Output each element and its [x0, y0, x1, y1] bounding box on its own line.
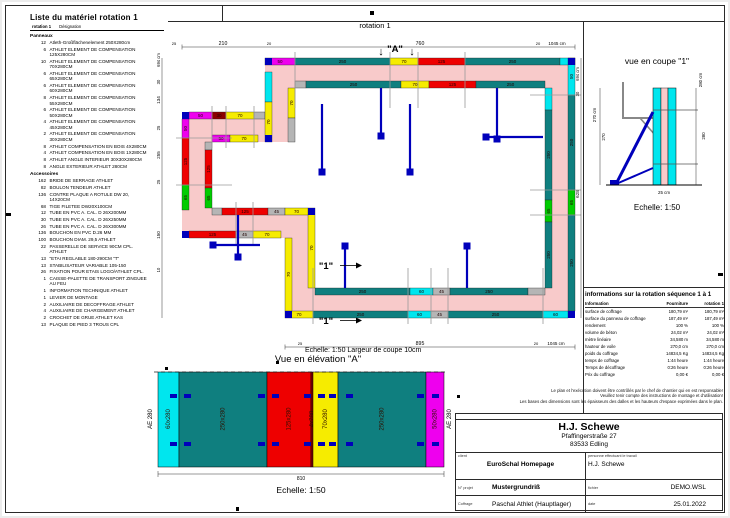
formwork-panel	[295, 81, 306, 88]
plan-view-drawing: 5025070125250250701252505025065250250652…	[150, 14, 590, 360]
info-value: 24,02 m³	[688, 329, 724, 336]
panel-size-label: 250	[546, 251, 551, 259]
dimension-label: 280	[701, 132, 706, 140]
drawing-sheet: { "frame": {"rotation_label": "rotation …	[0, 0, 730, 518]
panel-size-label: 45	[242, 232, 248, 237]
coffrage-cell: Coffrage Paschal Athlet (Hauptlager)	[456, 496, 586, 512]
disclaimer-text: Le plan et l'exécution doivent être cont…	[420, 388, 723, 404]
file-value: DEMO.WSL	[671, 484, 706, 491]
panel-size-label: 45	[437, 312, 443, 317]
item-qty: 8	[30, 157, 50, 162]
material-list-item: 8ATHLET ANGLE INTERIEUR 30X30X280CM	[30, 157, 164, 162]
prop-foot	[610, 180, 619, 185]
item-qty: 13	[30, 263, 50, 268]
tie-point	[304, 442, 311, 446]
dimension-label: 255	[156, 151, 161, 159]
material-list-item: 13PLAQUE DE PIED 3 TROUS CPL	[30, 322, 164, 327]
material-list-item: 4AUXILIAIRE DE CHARGEMENT ATHLET	[30, 308, 164, 313]
panel-size-label: 70x280	[323, 408, 329, 428]
material-list-item: 30TUBE EN PVC A. CAL. D 26X250MM	[30, 217, 164, 222]
item-name: AUXILIAIRE DE DECOFFRAGE ATHLET	[50, 302, 148, 307]
panel-size-label: 60	[553, 312, 559, 317]
dimension-label: 628	[575, 190, 580, 198]
formwork-panel	[653, 88, 661, 185]
info-value: 24,02 m³	[650, 329, 688, 336]
info-label: surface de coffrage	[585, 308, 650, 315]
panel-size-label: 70	[289, 100, 294, 106]
company-name: H.J. Schewe	[456, 421, 722, 433]
panel-size-label: 70	[296, 312, 302, 317]
material-list-item: 22PASSERELLE DE SERVICE 90CM CPL. ATHLET	[30, 244, 164, 255]
item-qty: 4	[30, 308, 50, 313]
panel-size-label: 125	[241, 209, 249, 214]
dimension-label: 30	[575, 91, 580, 96]
section-marker-1: "1"	[319, 261, 333, 272]
panel-size-label: 250	[569, 138, 574, 146]
panel-size-label: 30	[216, 113, 222, 118]
corner-element	[568, 58, 575, 65]
material-list-item: 12Atleth-Großflächenelement 250X280cm	[30, 40, 164, 45]
info-col-fourniture: Fourniture	[650, 301, 688, 306]
info-value: 34,580 m	[688, 336, 724, 343]
item-qty: 100	[30, 237, 50, 242]
bracket	[623, 82, 653, 118]
panel-size-label: 70	[294, 209, 300, 214]
panel-size-label: 50	[277, 59, 283, 64]
ae-label: AE 280	[148, 408, 154, 428]
item-name: ATHLET ELEMENT DE COMPENSATION 125X280CM	[50, 47, 148, 58]
info-col-rotation: rotation 1	[688, 301, 724, 306]
formwork-panel	[545, 88, 552, 110]
item-qty: 2	[30, 131, 50, 142]
item-qty: 26	[30, 269, 50, 274]
formwork-panel	[528, 288, 545, 295]
material-list-item: 1CAISSE-PALETTE DE TRANSPORT ZINGUEE AU …	[30, 276, 164, 287]
file-label: fichier	[588, 486, 622, 490]
panel-size-label: 125	[206, 165, 211, 173]
info-value: 1:44 heure	[650, 357, 688, 364]
item-qty: 1	[30, 288, 50, 293]
panel-size-label: 70	[237, 113, 243, 118]
company-city: 83533 Edling	[456, 441, 722, 449]
panel-size-label: 65	[569, 200, 574, 206]
tie-point	[417, 442, 424, 446]
panel-size-label: 250x280	[380, 407, 386, 431]
formwork-panel	[265, 72, 272, 102]
item-qty: 6	[30, 83, 50, 94]
dimension-label: 280 cm	[698, 72, 703, 87]
dimension-label: 25	[298, 341, 303, 346]
info-value: 0:26 heure	[650, 364, 688, 371]
prop-foot	[378, 133, 385, 140]
frame-mark-icon	[236, 507, 239, 511]
info-label: Prix du coffrage	[585, 371, 650, 378]
section-arrow-icon: ↓	[378, 46, 384, 58]
dimension-label: 210	[219, 41, 228, 47]
info-label: rendement	[585, 322, 650, 329]
dimension-label: 30	[156, 79, 161, 84]
item-qty: 10	[30, 59, 50, 70]
info-label: mètre linéaire	[585, 336, 650, 343]
panel-size-label: 45	[274, 209, 280, 214]
info-label: hauteur de voile	[585, 343, 650, 350]
material-list-item: 8ATHLET ELEMENT DE COMPENSATION 55X280CM	[30, 95, 164, 106]
info-title: informations sur la rotation séquence 1 …	[585, 291, 724, 298]
item-name: ATHLET ELEMENT DE COMPENSATION 30X280CM	[50, 131, 148, 142]
section-arrow-icon	[356, 263, 362, 269]
item-name: ATHLET ANGLE INTERIEUR 30X30X280CM	[50, 157, 148, 162]
panel-size-label: 250	[339, 59, 347, 64]
item-qty: 6	[30, 107, 50, 118]
worker-label: personne effectuant le travail	[588, 454, 720, 458]
tie-point	[258, 442, 265, 446]
item-name: "ETAI REGLABLE 180-290CM "T"	[50, 256, 148, 261]
dimension-label: 20	[536, 41, 541, 46]
material-list-header-designation: Désignation	[59, 24, 81, 29]
material-list-item: 136CONTRE PLAQUE A ROTULE DW 20, 14X20CM	[30, 192, 164, 203]
coffrage-label: Coffrage	[458, 502, 492, 506]
info-row: surface de coffrage180,79 m²180,79 m²	[585, 308, 724, 315]
project-cell: N° projet Mustergrundriß	[456, 480, 586, 495]
panel-size-label: 70	[241, 136, 247, 141]
panel-size-label: 250	[359, 289, 367, 294]
section-marker-1: "1"	[319, 316, 333, 327]
item-qty: 136	[30, 230, 50, 235]
corner-element	[265, 58, 272, 65]
item-name: BOULON TENDEUR ATHLET	[50, 185, 148, 190]
info-value: 14834,5 Kg	[650, 350, 688, 357]
dimension-label: 25	[156, 179, 161, 184]
material-list-item: 2AUXILIAIRE DE DECOFFRAGE ATHLET	[30, 302, 164, 307]
item-name: PLAQUE DE PIED 3 TROUS CPL	[50, 322, 148, 327]
disclaimer-line: Les bases des dimensions sont les épaiss…	[420, 399, 723, 404]
item-name: ATHLET ELEMENT DE COMPENSATION 65X280CM	[50, 71, 148, 82]
corner-element	[308, 208, 315, 215]
section-view-drawing: vue en coupe "1"270 cm270280 cm28025 cmE…	[590, 40, 724, 230]
item-qty: 6	[30, 71, 50, 82]
info-row: rendement100 %100 %	[585, 322, 724, 329]
tie-point	[346, 442, 353, 446]
material-list-item: 2CROCHET DE GRUE ATHLET KAS	[30, 315, 164, 320]
dimension-label: 25	[156, 125, 161, 130]
item-name: AUXILIAIRE DE CHARGEMENT ATHLET	[50, 308, 148, 313]
worker-cell: personne effectuant le travail H.J. Sche…	[586, 453, 722, 479]
ae-label: AE 280	[447, 408, 453, 428]
panel-size-label: 250x280	[221, 407, 227, 431]
info-row: poids du coffrage14834,5 Kg14834,5 Kg	[585, 350, 724, 357]
panel-size-label: 70	[412, 82, 418, 87]
info-label: volume de béton	[585, 329, 650, 336]
section-view-title: vue en coupe "1"	[625, 56, 689, 66]
dimension-label: 760	[416, 41, 425, 47]
panel-size-label: 125x280	[287, 407, 293, 431]
prop-foot	[342, 243, 349, 250]
dimension-label: 270 cm	[592, 107, 597, 122]
item-name: LEVIER DE MONTAGE	[50, 295, 148, 300]
dimension-label: 694 cm	[575, 67, 580, 81]
material-list-item: 1LEVIER DE MONTAGE	[30, 295, 164, 300]
item-name: ATHLET ELEMENT DE COMPENSATION 70X280CM	[50, 59, 148, 70]
info-value: 180,79 m²	[650, 308, 688, 315]
material-list-item: 8ANGLE EXTERIEUR ATHLET 280CM	[30, 164, 164, 169]
info-label: poids du coffrage	[585, 350, 650, 357]
company-street: Pfaffingerstraße 27	[456, 433, 722, 441]
material-list-header: rotation 1 Désignation	[30, 23, 164, 32]
info-divider	[583, 287, 724, 288]
item-name: ATHLET ELEMENT DE COMPENSATION 60X280CM	[50, 83, 148, 94]
tie-point	[329, 442, 336, 446]
material-list-item: 12TUBE EN PVC A. CAL. D 26X200MM	[30, 210, 164, 215]
item-qty: 82	[30, 185, 50, 190]
material-list-item: 68TIGE FILETEE DW20X100CM	[30, 204, 164, 209]
material-list-item: 162BRIDE DE SERRAGE ATHLET	[30, 178, 164, 183]
info-row: Temps de décoffrage0:26 heure0:26 heure	[585, 364, 724, 371]
title-block: H.J. Schewe Pfaffingerstraße 27 83533 Ed…	[455, 413, 723, 511]
item-name: TUBE EN PVC A. CAL. D 26X250MM	[50, 217, 148, 222]
item-name: BOUCHON EN PVC D.26 MM	[50, 230, 148, 235]
corner-element	[285, 311, 292, 318]
item-qty: 136	[30, 192, 50, 203]
material-section-header: Panneaux	[30, 34, 164, 39]
tie-point	[304, 394, 311, 398]
panel-size-label: 250	[485, 289, 493, 294]
material-list-item: 26TUBE EN PVC A. CAL. D 26X300MM	[30, 224, 164, 229]
corner-element	[182, 112, 189, 119]
panel-size-label: 60	[417, 312, 423, 317]
item-qty: 2	[30, 302, 50, 307]
item-name: CONTRE PLAQUE A ROTULE DW 20, 14X20CM	[50, 192, 148, 203]
panel-size-label: 70	[401, 59, 407, 64]
panel-size-label: 70	[286, 272, 291, 278]
tie-point	[318, 394, 325, 398]
material-list-item: 1INFORMATION TECHNIQUE ATHLET	[30, 288, 164, 293]
info-row: temps de coffrage1:44 heure1:44 heure	[585, 357, 724, 364]
material-list-item: 4ATHLET ELEMENT DE COMPENSATION 45X280CM	[30, 119, 164, 130]
item-qty: 68	[30, 204, 50, 209]
item-qty: 1	[30, 295, 50, 300]
frame-mark-icon	[718, 273, 723, 276]
section-arrow-icon	[356, 318, 362, 324]
panel-size-label: 50	[183, 126, 188, 132]
item-name: CAISSE-PALETTE DE TRANSPORT ZINGUEE AU F…	[50, 276, 148, 287]
tie-point	[272, 442, 279, 446]
push-pull-prop	[616, 112, 653, 184]
tie-point	[184, 394, 191, 398]
panel-size-label: 50	[569, 74, 574, 80]
project-label: N° projet	[458, 486, 492, 490]
elevation-title: Vue en élévation "A"	[237, 354, 399, 365]
panel-size-label: 125	[209, 232, 217, 237]
item-name: INFORMATION TECHNIQUE ATHLET	[50, 288, 148, 293]
item-qty: 12	[30, 210, 50, 215]
item-qty: 4	[30, 119, 50, 130]
material-list-item: 13STABILISATEUR VARIABLE 105-150	[30, 263, 164, 268]
formwork-panel	[254, 112, 265, 119]
formwork-panel	[205, 142, 212, 150]
plan-scale-note: Echelle: 1:50 Largeur de coupe 10cm	[305, 347, 421, 354]
rotation-info-panel: informations sur la rotation séquence 1 …	[585, 291, 724, 378]
dimension-label: 810	[297, 476, 306, 482]
item-qty: 22	[30, 244, 50, 255]
dimension-label: 20	[267, 41, 272, 46]
item-name: BRIDE DE SERRAGE ATHLET	[50, 178, 148, 183]
corner-element	[568, 311, 575, 318]
panel-size-label: 60x280	[166, 408, 172, 428]
panel-size-label: 250	[569, 259, 574, 267]
material-list-body: Panneaux12Atleth-Großflächenelement 250X…	[30, 34, 164, 328]
section-arrow-icon: ↓	[409, 46, 415, 58]
panel-size-label: 125	[449, 82, 457, 87]
prop-foot	[464, 243, 471, 250]
item-name: STABILISATEUR VARIABLE 105-150	[50, 263, 148, 268]
info-value: 270,0 cm	[688, 343, 724, 350]
item-name: ATHLET COMPENSATION EN BOIS 1X280CM	[50, 150, 148, 155]
material-list-item: 4ATHLET COMPENSATION EN BOIS 1X280CM	[30, 150, 164, 155]
date-label: date	[588, 502, 622, 506]
date-value: 25.01.2022	[673, 501, 706, 508]
dimension-label: 150	[156, 231, 161, 239]
item-qty: 8	[30, 164, 50, 169]
corner-element	[265, 135, 272, 142]
tie-point	[432, 442, 439, 446]
item-qty: 162	[30, 178, 50, 183]
dimension-label: 20	[534, 341, 539, 346]
corner-element	[182, 231, 189, 238]
info-label: temps de coffrage	[585, 357, 650, 364]
material-list-item: 136BOUCHON EN PVC D.26 MM	[30, 230, 164, 235]
panel-size-label: 65	[206, 195, 211, 201]
info-row: volume de béton24,02 m³24,02 m³	[585, 329, 724, 336]
item-qty: 2	[30, 315, 50, 320]
panel-size-label: 250	[509, 59, 517, 64]
item-name: ATHLET ELEMENT DE COMPENSATION 45X280CM	[50, 119, 148, 130]
item-name: BOUCHON DIAM. 29,5 ATHLET	[50, 237, 148, 242]
section-scale-label: Echelle: 1:50	[634, 203, 681, 212]
info-value: 270,0 cm	[650, 343, 688, 350]
coffrage-value: Paschal Athlet (Hauptlager)	[492, 501, 571, 508]
panel-size-label: 60	[419, 289, 425, 294]
item-name: ANGLE EXTERIEUR ATHLET 280CM	[50, 164, 148, 169]
item-name: ATHLET ELEMENT DE COMPENSATION 50X280CM	[50, 107, 148, 118]
item-qty: 12	[30, 40, 50, 45]
tie-point	[258, 394, 265, 398]
item-name: Atleth-Großflächenelement 250X280cm	[50, 40, 148, 45]
prop-foot	[210, 242, 217, 249]
panel-size-label: 70	[309, 245, 314, 251]
dimension-label: 270	[601, 133, 606, 141]
item-name: FIXATION POUR ETAIS LOGO/ATHLET CPL.	[50, 269, 148, 274]
info-row: mètre linéaire34,580 m34,580 m	[585, 336, 724, 343]
tie-point	[272, 394, 279, 398]
panel-size-label: 250	[546, 151, 551, 159]
item-qty: 4	[30, 150, 50, 155]
item-qty: 26	[30, 224, 50, 229]
dimension-label: 134	[156, 96, 161, 104]
file-cell: fichier DEMO.WSL	[586, 480, 722, 495]
panel-size-label: 125	[183, 157, 188, 165]
material-list-item: 82BOULON TENDEUR ATHLET	[30, 185, 164, 190]
item-name: TIGE FILETEE DW20X100CM	[50, 204, 148, 209]
material-list-item: 26FIXATION POUR ETAIS LOGO/ATHLET CPL.	[30, 269, 164, 274]
item-qty: 8	[30, 95, 50, 106]
wall-core	[661, 88, 668, 185]
prop-foot	[494, 136, 501, 143]
company-block: H.J. Schewe Pfaffingerstraße 27 83533 Ed…	[456, 420, 722, 453]
item-name: ATHLET COMPENSATION EN BOIS 4X280CM	[50, 144, 148, 149]
info-table-header: Information Fourniture rotation 1	[585, 301, 724, 308]
item-qty: 1	[30, 276, 50, 287]
info-label: surface du panneau de coffrage	[585, 315, 650, 322]
material-list-item: 6ATHLET ELEMENT DE COMPENSATION 125X280C…	[30, 47, 164, 58]
info-value: 14834,5 Kg	[688, 350, 724, 357]
item-qty: 13	[30, 256, 50, 261]
material-list-item: 10ATHLET ELEMENT DE COMPENSATION 70X280C…	[30, 59, 164, 70]
info-value: 0,00 €	[650, 371, 688, 378]
material-list-item: 8ATHLET COMPENSATION EN BOIS 4X280CM	[30, 144, 164, 149]
info-value: 187,49 m²	[650, 315, 688, 322]
item-name: TUBE EN PVC A. CAL. D 26X200MM	[50, 210, 148, 215]
tie-point	[170, 442, 177, 446]
panel-size-label: 70	[264, 232, 270, 237]
section-marker-a: "A"	[387, 44, 403, 55]
date-cell: date 25.01.2022	[586, 496, 722, 512]
material-list-title: Liste du matériel rotation 1	[30, 13, 164, 22]
item-name: PASSERELLE DE SERVICE 90CM CPL. ATHLET	[50, 244, 148, 255]
material-list-item: 2ATHLET ELEMENT DE COMPENSATION 30X280CM	[30, 131, 164, 142]
info-col-information: Information	[585, 301, 650, 306]
dimension-label: 25	[172, 41, 177, 46]
panel-size-label: 65	[183, 195, 188, 201]
project-value: Mustergrundriß	[492, 484, 540, 491]
item-qty: 8	[30, 144, 50, 149]
prop-foot	[235, 254, 242, 261]
panel-size-label: 250	[507, 82, 515, 87]
item-name: TUBE EN PVC A. CAL. D 26X300MM	[50, 224, 148, 229]
dimension-label: 1045 cm	[548, 41, 566, 46]
elevation-view-drawing: 60x280250x280125x2804x28070x280250x28050…	[140, 366, 460, 500]
info-row: Prix du coffrage0,00 €0,00 €	[585, 371, 724, 378]
tie-point	[329, 394, 336, 398]
worker-value: H.J. Schewe	[588, 461, 720, 468]
dimension-label: 694 cm	[156, 53, 161, 67]
dimension-label: 25 cm	[658, 190, 670, 195]
material-list-header-rotation: rotation 1	[32, 24, 51, 29]
tie-point	[346, 394, 353, 398]
item-qty: 13	[30, 322, 50, 327]
panel-size-label: 70	[266, 119, 271, 125]
panel-size-label: 45	[439, 289, 445, 294]
formwork-panel	[288, 118, 295, 142]
material-list: Liste du matériel rotation 1 rotation 1 …	[30, 13, 164, 328]
info-value: 100 %	[688, 322, 724, 329]
material-list-item: 6ATHLET ELEMENT DE COMPENSATION 60X280CM	[30, 83, 164, 94]
panel-size-label: 250	[492, 312, 500, 317]
item-name: ATHLET ELEMENT DE COMPENSATION 55X280CM	[50, 95, 148, 106]
material-list-item: 13"ETAI REGLABLE 180-290CM "T"	[30, 256, 164, 261]
prop-foot	[407, 169, 414, 176]
material-list-item: 6ATHLET ELEMENT DE COMPENSATION 65X280CM	[30, 71, 164, 82]
tie-point	[318, 442, 325, 446]
panel-size-label: 250	[350, 82, 358, 87]
prop-foot	[483, 134, 490, 141]
info-value: 180,79 m²	[688, 308, 724, 315]
panel-size-label: 50	[198, 113, 204, 118]
item-name: CROCHET DE GRUE ATHLET KAS	[50, 315, 148, 320]
tie-point	[170, 394, 177, 398]
dimension-label: 1045 cm	[547, 341, 565, 346]
panel-size-label: 50	[218, 136, 224, 141]
client-value: EuroSchal Homepage	[458, 461, 583, 468]
